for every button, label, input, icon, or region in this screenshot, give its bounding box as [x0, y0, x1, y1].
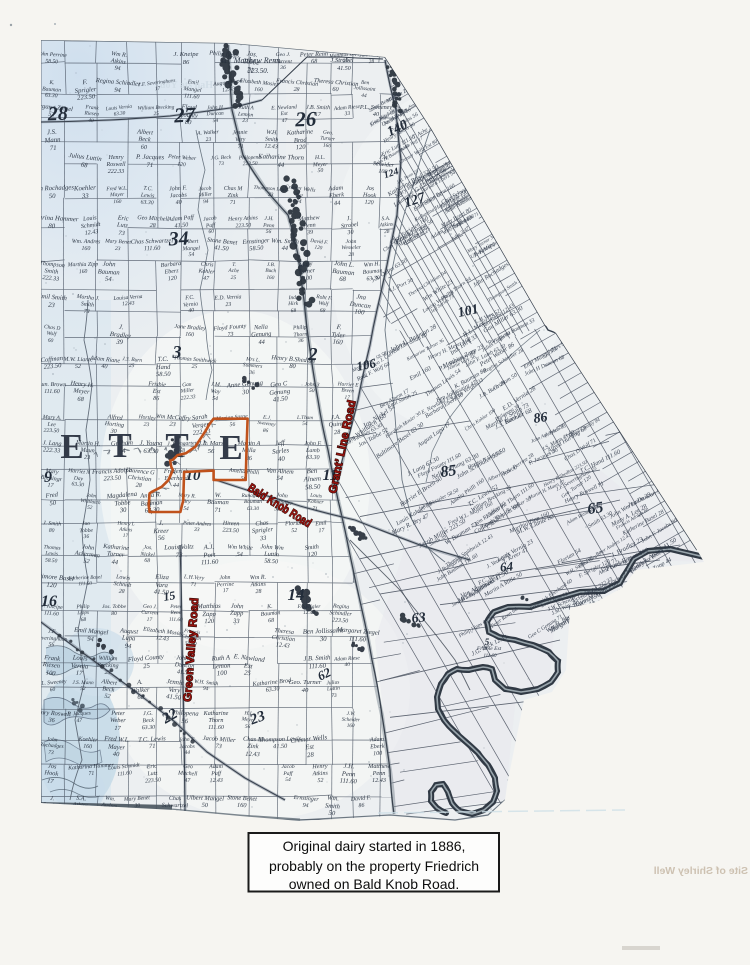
svg-text:9: 9: [44, 469, 52, 486]
svg-text:63: 63: [411, 610, 426, 626]
svg-text:223.50.: 223.50.: [248, 67, 269, 75]
svg-text:Site of Shirley Well: Site of Shirley Well: [654, 865, 748, 877]
svg-text:AdamPaff12.43: AdamPaff12.43: [208, 764, 223, 784]
svg-text:probably on the property Fried: probably on the property Friedrich: [269, 858, 479, 874]
svg-text:41.50: 41.50: [337, 65, 351, 72]
svg-text:86: 86: [533, 410, 549, 427]
svg-text:J.Strobel: J.Strobel: [330, 57, 353, 64]
svg-text:uoY ats naH: uoY ats naH: [160, 80, 213, 91]
svg-text:111.60: 111.60: [483, 654, 497, 659]
svg-text:T: T: [108, 426, 131, 465]
svg-text:26: 26: [294, 107, 317, 132]
svg-text:Matthew Renn.: Matthew Renn.: [233, 56, 282, 65]
svg-text:15: 15: [162, 588, 176, 604]
svg-text:Coffman223.50: Coffman223.50: [40, 355, 64, 371]
svg-text:34: 34: [167, 227, 189, 250]
svg-text:PeterRenn111.60: PeterRenn111.60: [169, 604, 183, 623]
svg-text:Original dairy started in 1886: Original dairy started in 1886,: [283, 838, 466, 854]
svg-text:3: 3: [172, 342, 182, 362]
svg-text:T: T: [165, 426, 188, 465]
svg-text:27: 27: [173, 102, 198, 127]
svg-text:John F.Lamb63.30: John F.Lamb63.30: [304, 441, 322, 461]
svg-text:28: 28: [46, 103, 68, 126]
svg-text:E: E: [219, 428, 242, 467]
svg-text:W.H.Smith12.43: W.H.Smith12.43: [264, 130, 279, 151]
svg-text:J. Lang222.33: J. Lang222.33: [42, 439, 62, 454]
svg-text:85: 85: [439, 462, 457, 481]
svg-text:owned on Bald Knob Road.: owned on Bald Knob Road.: [289, 876, 459, 892]
svg-text:65: 65: [586, 499, 604, 518]
svg-text:2: 2: [308, 344, 318, 364]
svg-text:5: 5: [485, 637, 490, 647]
svg-text:Hireen223.50: Hireen223.50: [221, 521, 239, 535]
svg-text:64: 64: [499, 558, 514, 574]
svg-text:HenryRoswell222.33: HenryRoswell222.33: [106, 155, 126, 175]
svg-text:14: 14: [288, 585, 305, 604]
svg-text:16: 16: [41, 593, 57, 610]
svg-text:E: E: [60, 427, 83, 466]
